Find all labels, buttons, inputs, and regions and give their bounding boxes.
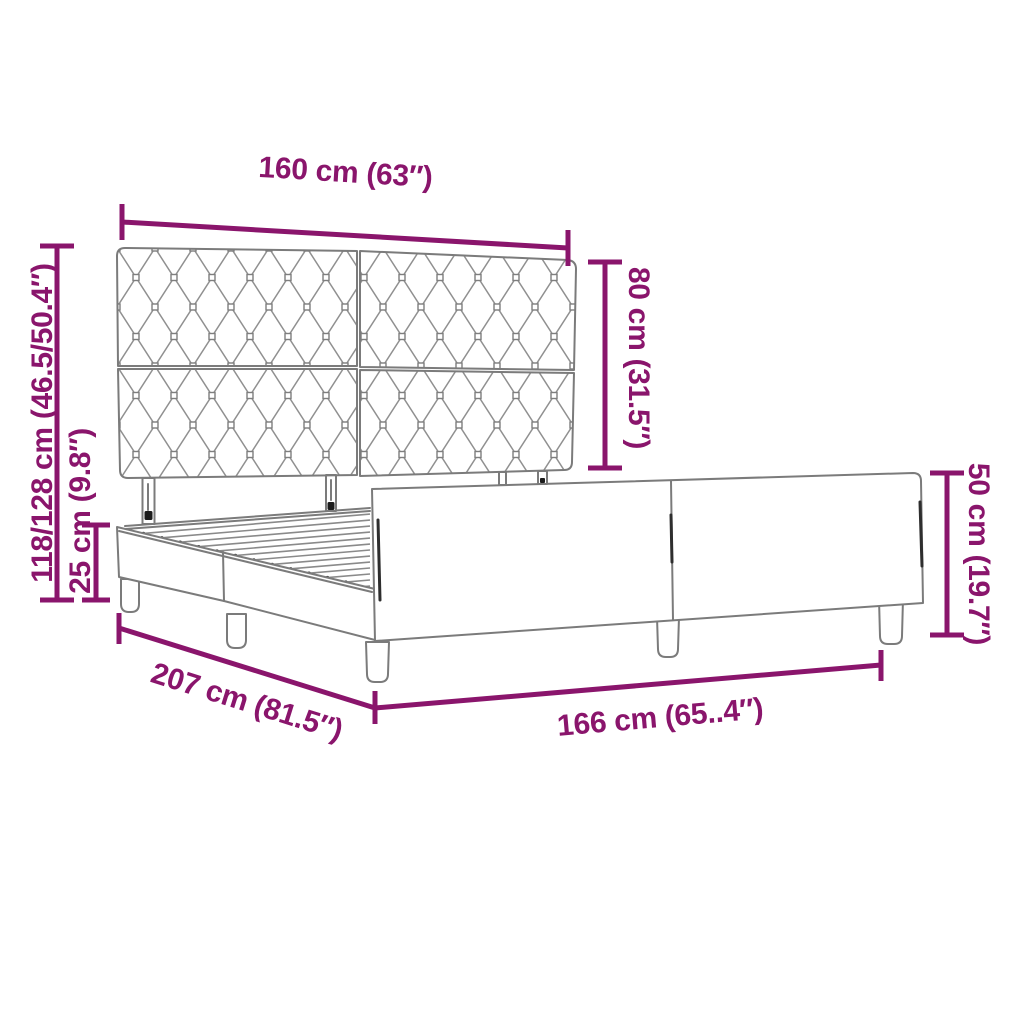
post-bolt — [328, 502, 335, 510]
label-side-height: 50 cm (19.7″) — [962, 463, 995, 645]
label-headboard-width: 160 cm (63″) — [258, 151, 434, 194]
headboard-panel-top-right — [360, 251, 576, 370]
label-frame-width: 166 cm (65..4″) — [556, 692, 765, 743]
headboard-panel-bottom-left — [118, 369, 357, 478]
label-headboard-height: 80 cm (31.5″) — [622, 267, 655, 449]
diagram-canvas: 160 cm (63″) 80 cm (31.5″) 118/128 cm (4… — [0, 0, 1024, 1024]
label-overall-height: 118/128 cm (46.5/50.4″) — [26, 263, 59, 582]
label-base-height: 25 cm (9.8″) — [64, 428, 97, 594]
headboard-post — [499, 472, 506, 485]
headboard-panel-bottom-right — [360, 370, 574, 476]
bed-frame-dimension-diagram: 160 cm (63″) 80 cm (31.5″) 118/128 cm (4… — [0, 0, 1024, 1024]
leg — [366, 642, 389, 682]
side-rail-seam — [223, 552, 224, 601]
dimension-side-height — [930, 473, 964, 635]
dimension-frame-width — [375, 650, 881, 708]
leg — [657, 617, 679, 657]
headboard — [117, 248, 576, 478]
leg — [121, 579, 139, 612]
headboard-panel-top-left — [117, 248, 357, 366]
leg — [227, 614, 246, 648]
post-bolt — [540, 478, 545, 483]
footboard-panel — [372, 473, 923, 641]
post-bolt — [145, 511, 153, 520]
dimension-headboard-height — [588, 262, 622, 468]
